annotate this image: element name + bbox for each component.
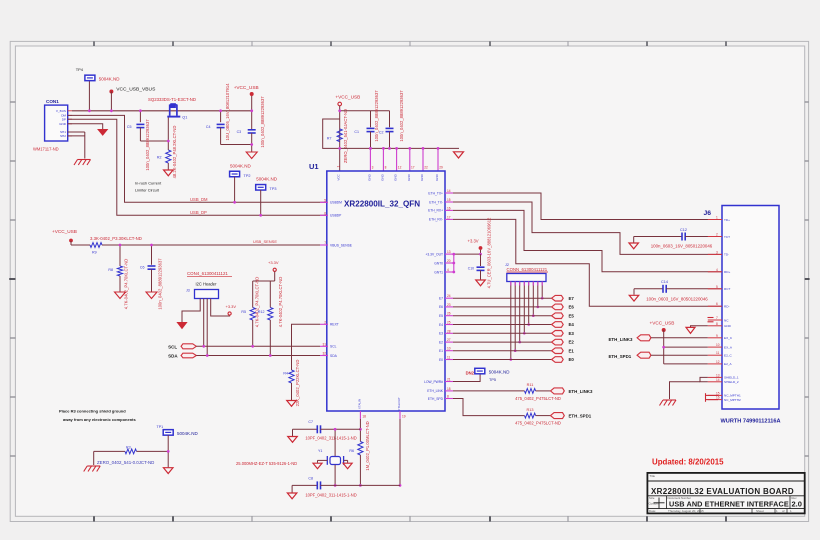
svg-text:C14: C14 [661,280,668,284]
svg-text:CON4_61300411121: CON4_61300411121 [187,271,228,276]
svg-text:GND: GND [59,122,67,126]
svg-text:E7: E7 [569,296,575,301]
svg-text:RD-: RD- [724,305,730,309]
svg-text:J6: J6 [704,210,712,217]
svg-text:E5: E5 [569,313,575,318]
svg-text:100n_0402_888912293637: 100n_0402_888912293637 [399,90,404,142]
svg-text:2: 2 [716,233,718,237]
svg-text:100n_0402_888912293637: 100n_0402_888912293637 [157,258,162,310]
svg-text:RCT: RCT [724,287,730,291]
svg-text:25: 25 [447,321,451,325]
svg-text:6: 6 [324,211,326,215]
svg-text:2: 2 [324,320,326,324]
svg-text:GND: GND [394,173,398,181]
svg-text:C1: C1 [354,130,359,134]
svg-text:17: 17 [447,215,451,219]
svg-text:GNT1: GNT1 [434,270,443,274]
svg-text:Custom: Custom [649,502,660,506]
svg-text:R8: R8 [108,268,113,272]
svg-text:VCC: VCC [337,174,341,181]
svg-text:100n_0402_888912293637: 100n_0402_888912293637 [260,96,265,148]
svg-text:USB_DP: USB_DP [190,210,207,215]
svg-text:E2_A: E2_A [724,362,733,366]
svg-text:away from any electronic compo: away from any electronic components [63,417,136,422]
svg-text:E3: E3 [569,331,575,336]
svg-text:100n_0603_16V_80501220046: 100n_0603_16V_80501220046 [646,297,708,302]
svg-text:R6: R6 [349,449,354,453]
svg-text:7: 7 [324,241,326,245]
svg-text:Y1: Y1 [318,449,322,453]
svg-text:Q1: Q1 [182,115,187,119]
svg-text:1: 1 [337,165,341,167]
svg-text:E2_C: E2_C [724,354,733,358]
svg-text:SHIELD_1: SHIELD_1 [724,376,739,380]
svg-text:USB_SENSE: USB_SENSE [253,239,277,244]
svg-text:ETH_LINK3: ETH_LINK3 [609,337,633,342]
svg-text:J3: J3 [186,289,190,293]
svg-text:CONN_61300411121: CONN_61300411121 [507,267,548,272]
svg-text:1: 1 [716,216,718,220]
svg-text:C10: C10 [468,267,474,271]
svg-text:C3: C3 [237,130,242,134]
svg-text:4.7K-0402_P4.70KLCT-ND: 4.7K-0402_P4.70KLCT-ND [255,277,260,328]
svg-text:R2: R2 [157,156,162,160]
svg-text:4: 4 [447,268,449,272]
svg-text:XR22800IL32 EVALUATION BOARD: XR22800IL32 EVALUATION BOARD [651,487,794,496]
svg-text:WURTH 74990112116A: WURTH 74990112116A [721,419,781,425]
svg-text:E5: E5 [439,314,443,318]
svg-text:+3.3V: +3.3V [226,304,237,309]
svg-text:8: 8 [716,322,718,326]
svg-text:4.7K-0402_P4.70KLCT-ND: 4.7K-0402_P4.70KLCT-ND [124,259,129,310]
svg-text:12: 12 [398,166,402,170]
svg-text:15: 15 [447,198,451,202]
svg-text:29: 29 [439,166,443,170]
svg-text:31: 31 [322,342,326,346]
svg-text:13: 13 [447,250,451,254]
svg-text:TP4: TP4 [76,67,84,72]
svg-text:8: 8 [447,395,449,399]
svg-text:14: 14 [716,378,720,382]
svg-text:R3: R3 [126,446,131,450]
svg-text:21: 21 [447,378,451,382]
svg-text:27: 27 [447,338,451,342]
svg-text:E0: E0 [439,358,443,362]
svg-text:18: 18 [362,415,366,419]
svg-text:C6: C6 [140,266,145,270]
svg-text:EX_A: EX_A [724,345,733,349]
svg-text:3: 3 [716,250,718,254]
svg-text:ETH_SPD: ETH_SPD [428,397,444,401]
svg-text:GND: GND [435,173,439,181]
svg-text:8: 8 [385,166,387,170]
svg-text:+VCC_USB: +VCC_USB [335,95,360,100]
svg-text:USBDP: USBDP [330,214,342,218]
svg-text:25.000MHZ-EZ-T 535-9126-1-ND: 25.000MHZ-EZ-T 535-9126-1-ND [236,461,297,466]
svg-text:E3: E3 [439,332,443,336]
svg-text:ETH_SPD1: ETH_SPD1 [569,414,592,419]
svg-text:TD-: TD- [724,253,729,257]
svg-text:RD+: RD+ [724,270,730,274]
svg-text:5: 5 [324,198,326,202]
svg-text:5: 5 [716,285,718,289]
svg-text:E4: E4 [439,323,443,327]
svg-text:100n_0603_16V_80501220046: 100n_0603_16V_80501220046 [651,244,713,249]
svg-text:ZERO_0402_541-0.0JCT-ND: ZERO_0402_541-0.0JCT-ND [97,460,154,465]
svg-text:3.3K-0402_P3.30KLCT-ND: 3.3K-0402_P3.30KLCT-ND [90,236,142,241]
svg-text:C5: C5 [127,125,132,129]
svg-text:C8: C8 [308,477,313,481]
svg-text:E2: E2 [439,340,443,344]
svg-text:GND: GND [407,173,411,181]
svg-text:Sheet: Sheet [756,509,764,513]
svg-text:10: 10 [716,343,720,347]
svg-text:ETH_RX-: ETH_RX- [429,218,443,222]
svg-text:C4: C4 [206,125,211,129]
svg-text:SDA: SDA [330,354,338,358]
svg-text:VCC_USB_VBUS: VCC_USB_VBUS [116,87,156,93]
svg-text:48.2K-0402_P48.2KLCT-ND: 48.2K-0402_P48.2KLCT-ND [172,126,177,179]
svg-text:CON1: CON1 [46,99,59,104]
svg-text:USBDM: USBDM [330,201,342,205]
svg-text:+3.3V_OUT: +3.3V_OUT [425,252,443,256]
svg-text:10: 10 [447,347,451,351]
svg-text:ETH_SPD1: ETH_SPD1 [609,354,632,359]
svg-text:5004K.ND: 5004K.ND [489,370,511,375]
svg-text:TP1: TP1 [157,425,164,429]
svg-text:ETH_TX-: ETH_TX- [429,200,443,204]
svg-text:20: 20 [447,259,451,263]
svg-text:3: 3 [372,166,374,170]
svg-text:XTALIN: XTALIN [357,399,361,409]
svg-text:SHIELD_2: SHIELD_2 [724,380,739,384]
svg-text:Thursday, August 20, 2015: Thursday, August 20, 2015 [668,509,704,513]
svg-text:of: of [782,509,785,513]
svg-text:I2C Header: I2C Header [196,282,218,287]
svg-text:ETH_LINK: ETH_LINK [427,389,444,393]
svg-text:REXT: REXT [330,323,339,327]
svg-text:GND: GND [367,173,371,181]
svg-text:E1: E1 [569,348,575,353]
svg-text:+3.3V: +3.3V [468,239,479,244]
svg-text:GND: GND [420,173,424,181]
svg-text:SCL: SCL [330,345,337,349]
svg-text:26: 26 [447,312,451,316]
svg-text:C7: C7 [308,420,313,424]
svg-text:GND: GND [724,324,732,328]
svg-text:+VCC_USB: +VCC_USB [52,229,77,234]
svg-text:R5: R5 [241,310,246,314]
svg-text:5004K.ND: 5004K.ND [99,77,121,82]
svg-text:10U_0805_16V_80812107914: 10U_0805_16V_80812107914 [225,83,230,141]
svg-text:Date:: Date: [649,509,656,513]
svg-text:Place R3 connecting shield gro: Place R3 connecting shield ground [59,409,126,414]
svg-text:TP5: TP5 [489,378,496,382]
svg-text:NC_MPTH2: NC_MPTH2 [724,398,741,402]
svg-text:WM17117-ND: WM17117-ND [33,147,59,152]
svg-text:16: 16 [447,206,451,210]
svg-text:Title: Title [650,474,656,478]
svg-text:NC: NC [724,318,729,322]
svg-text:TD+: TD+ [724,218,730,222]
svg-text:2.0: 2.0 [792,500,802,509]
svg-text:E2: E2 [569,340,575,345]
svg-text:475_0402_P475LCT-ND: 475_0402_P475LCT-ND [515,421,561,426]
svg-text:1M_0402_P1.00MLCT-ND: 1M_0402_P1.00MLCT-ND [365,421,370,470]
svg-text:+3.3V: +3.3V [268,260,279,265]
svg-text:22K_0402_P22KLCT-ND: 22K_0402_P22KLCT-ND [295,360,300,407]
svg-text:R4: R4 [283,372,288,376]
svg-text:E0: E0 [569,357,575,362]
svg-text:XR22800IL_32_QFN: XR22800IL_32_QFN [344,199,420,208]
svg-text:Size: Size [649,496,655,500]
svg-text:SDA: SDA [168,354,178,359]
svg-text:5004K.ND: 5004K.ND [256,176,278,181]
svg-text:C2: C2 [379,131,384,135]
svg-text:In-rush Current: In-rush Current [135,181,162,186]
svg-text:7: 7 [716,316,718,320]
svg-text:XTALOUT: XTALOUT [397,397,401,411]
svg-text:V_BUS: V_BUS [56,109,66,113]
svg-text:E4: E4 [569,322,575,327]
svg-text:Limiter Circuit: Limiter Circuit [135,188,160,193]
svg-text:EX_C: EX_C [724,336,733,340]
svg-text:USB AND ETHERNET INTERFACE: USB AND ETHERNET INTERFACE [669,500,789,509]
svg-text:E6: E6 [569,305,575,310]
svg-text:R13: R13 [527,408,534,412]
svg-text:E6: E6 [439,305,443,309]
svg-text:19: 19 [402,415,406,419]
svg-text:C12: C12 [680,228,687,232]
svg-text:U1: U1 [309,162,319,171]
svg-text:ZERO_0402_541-0JACT-ND: ZERO_0402_541-0JACT-ND [343,109,348,163]
svg-text:14: 14 [447,189,451,193]
svg-text:USB_DM: USB_DM [190,197,208,202]
svg-text:TP3: TP3 [270,187,277,191]
svg-text:E1: E1 [439,349,443,353]
svg-text:6: 6 [716,302,718,306]
svg-text:17: 17 [411,166,415,170]
svg-text:10PF_0402_311-1415-1-ND: 10PF_0402_311-1415-1-ND [305,435,356,440]
svg-text:16: 16 [716,396,720,400]
svg-text:TCT: TCT [724,235,730,239]
svg-text:ETH_LINK3: ETH_LINK3 [569,389,593,394]
svg-text:18: 18 [447,387,451,391]
svg-text:+VCC_USB: +VCC_USB [650,321,675,326]
svg-text:10PF_0402_311-1415-1-ND: 10PF_0402_311-1415-1-ND [305,493,356,498]
svg-text:5004K.ND: 5004K.ND [230,164,252,169]
svg-text:Updated: 8/20/2015: Updated: 8/20/2015 [652,458,724,467]
svg-text:VBUS_SENSE: VBUS_SENSE [330,243,353,247]
svg-text:4.7U_CER_0603-16V_888121069612: 4.7U_CER_0603-16V_888121069612 [487,217,492,288]
svg-text:+VCC_USB: +VCC_USB [234,85,259,90]
svg-text:R12: R12 [258,310,265,314]
svg-text:24: 24 [447,294,451,298]
svg-text:28: 28 [447,329,451,333]
svg-text:4: 4 [716,268,718,272]
svg-text:DN2: DN2 [466,371,475,376]
svg-text:ETH_RX+: ETH_RX+ [428,209,443,213]
svg-text:SCL: SCL [168,345,177,350]
svg-text:R11: R11 [527,383,534,387]
svg-text:11: 11 [716,351,720,355]
svg-text:11: 11 [447,356,451,360]
svg-text:22: 22 [424,166,428,170]
svg-text:13: 13 [716,373,720,377]
svg-text:9: 9 [716,334,718,338]
svg-text:4.7K-0402_P4.70KLCT-ND: 4.7K-0402_P4.70KLCT-ND [278,277,283,328]
svg-text:GND: GND [380,173,384,181]
svg-text:LOW_PWR#: LOW_PWR# [424,380,443,384]
svg-text:SQ2333DS-T1-E3CT-ND: SQ2333DS-T1-E3CT-ND [148,97,196,102]
svg-text:DP: DP [62,117,66,121]
svg-text:R7: R7 [327,137,332,141]
svg-text:32: 32 [322,352,326,356]
svg-text:E7: E7 [439,297,443,301]
svg-text:5004K.ND: 5004K.ND [177,431,199,436]
svg-text:GNT0: GNT0 [434,261,443,265]
svg-text:475_0402_P475LCT-ND: 475_0402_P475LCT-ND [515,396,561,401]
svg-text:R9: R9 [92,251,97,255]
svg-text:12: 12 [716,360,720,364]
svg-text:ETH_TX+: ETH_TX+ [428,191,443,195]
svg-text:100n_0402_888912293637: 100n_0402_888912293637 [145,119,150,171]
svg-text:SH2: SH2 [60,134,66,138]
svg-text:TP2: TP2 [244,174,251,178]
svg-text:23: 23 [447,303,451,307]
